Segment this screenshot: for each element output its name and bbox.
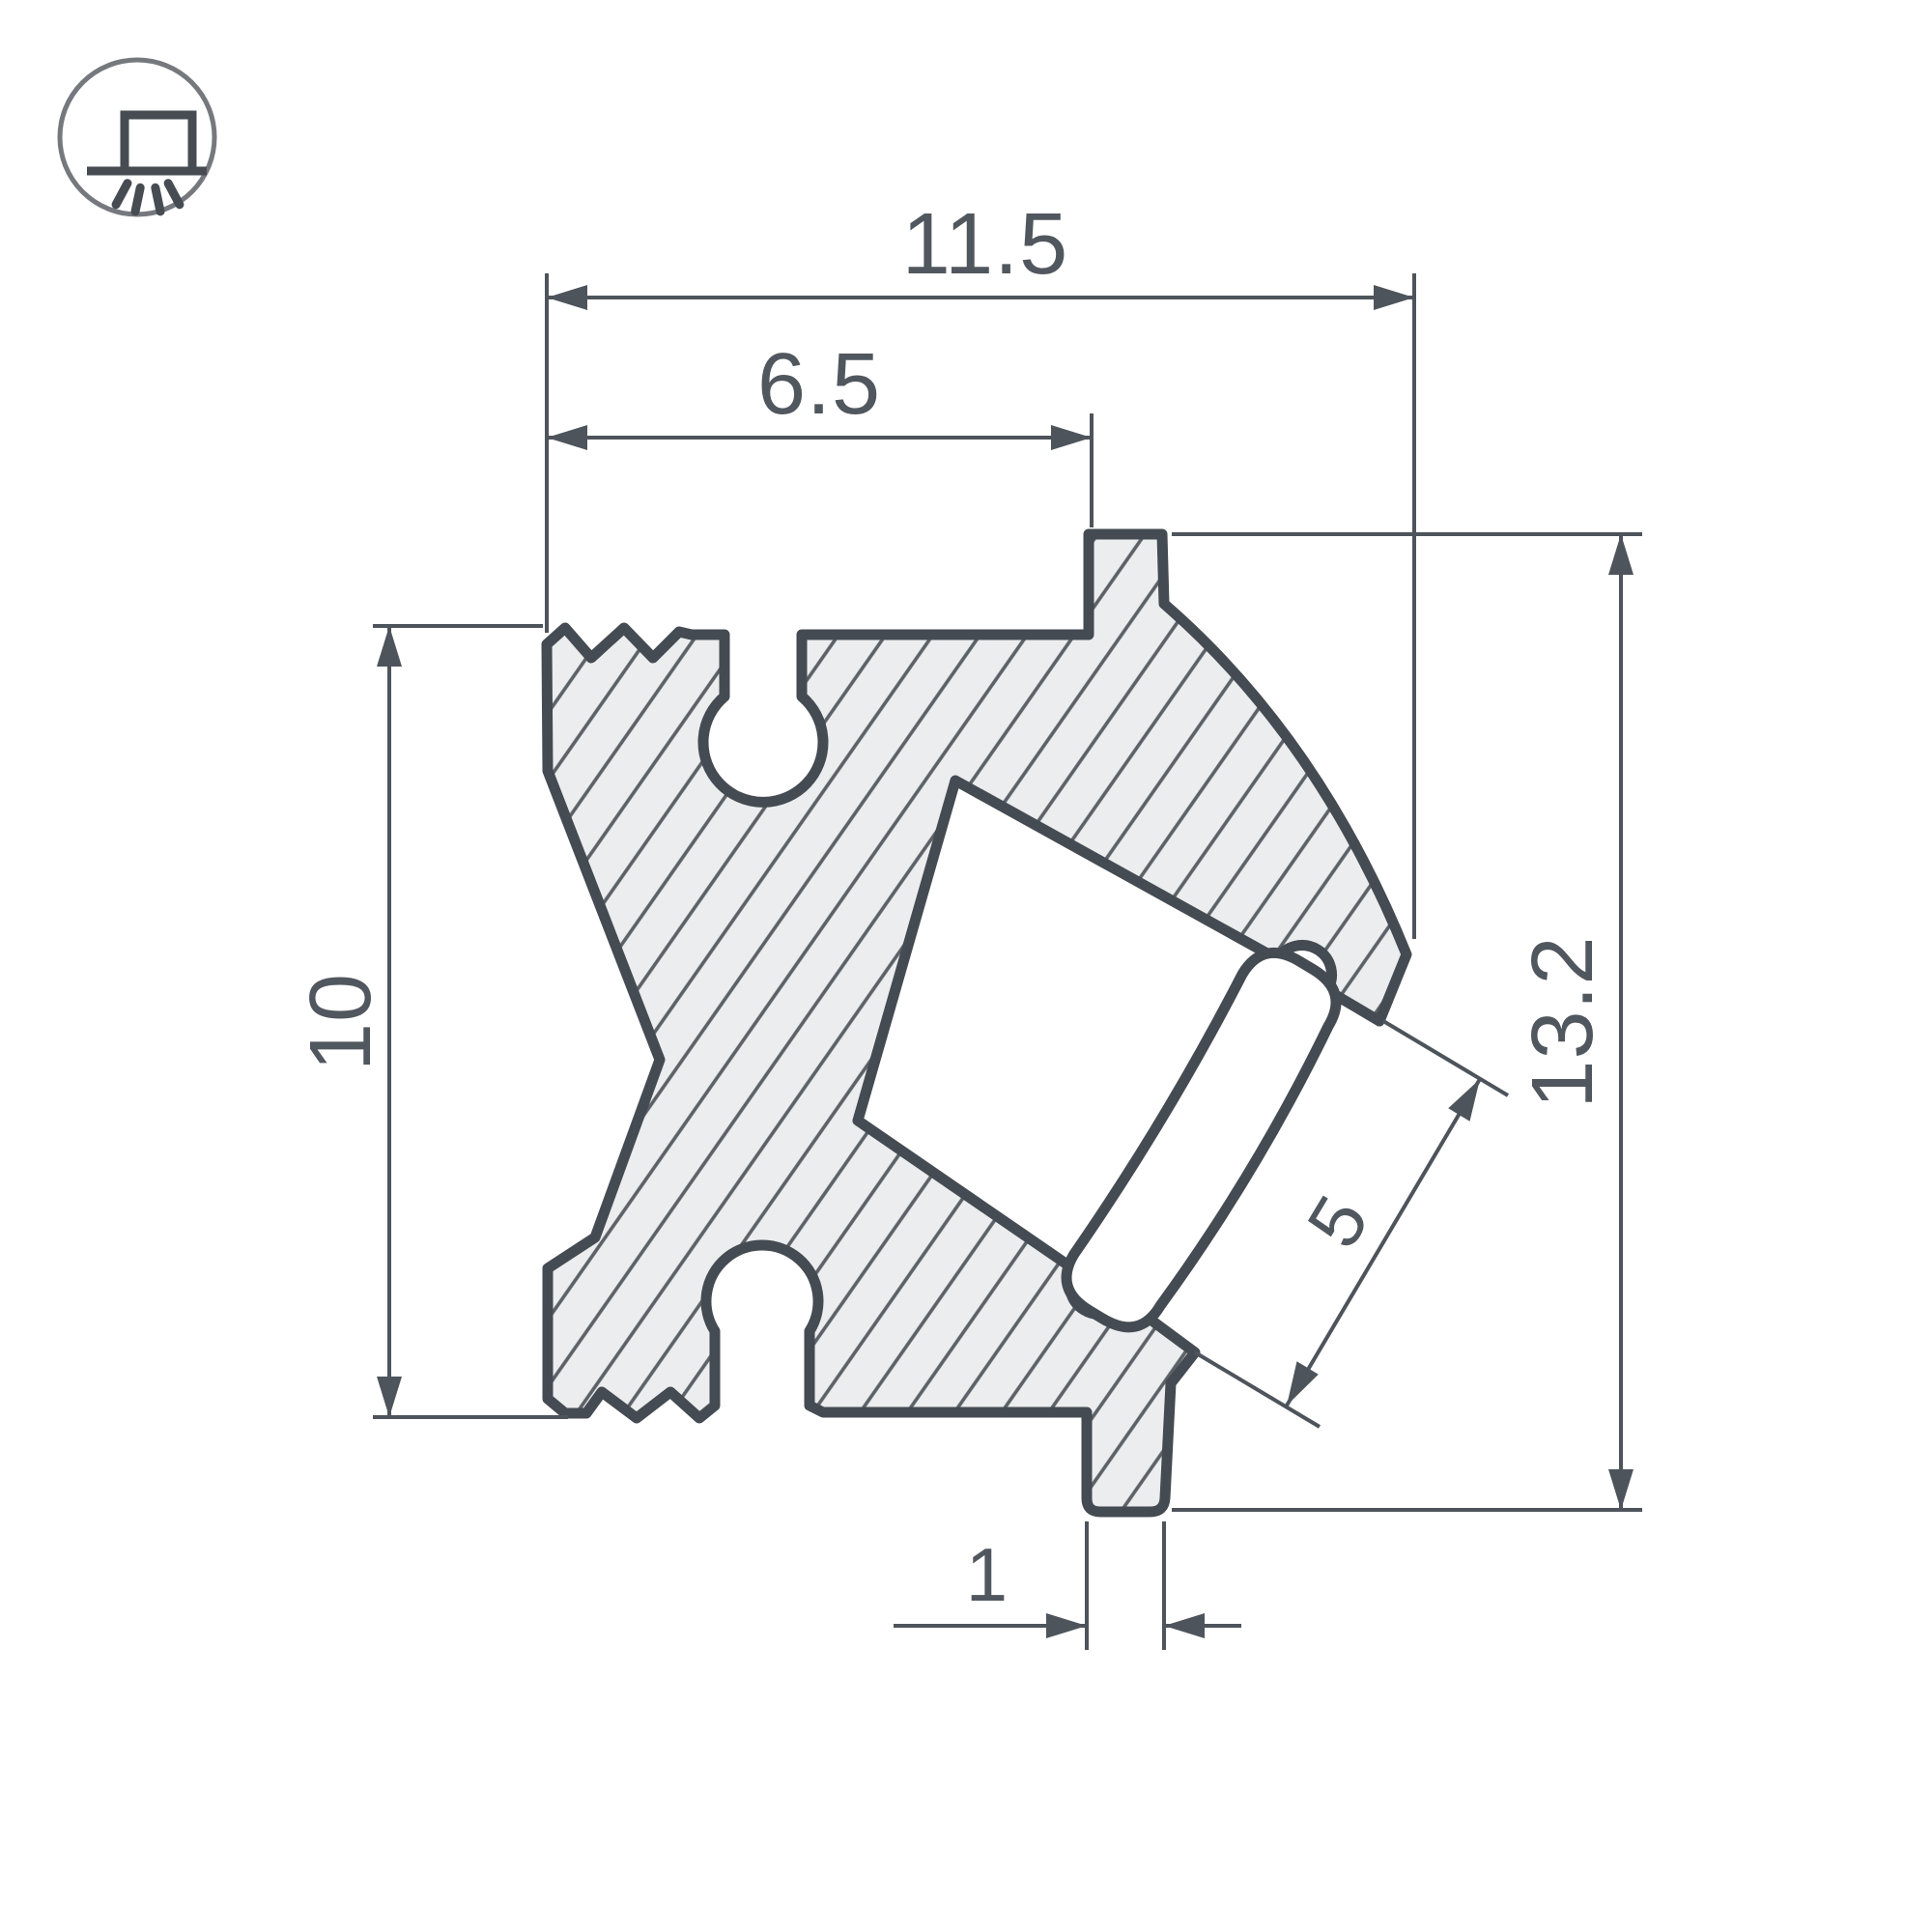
dimension-foot-width-label: 1 [966,1532,1009,1617]
dimension-overall-width-label: 11.5 [902,196,1069,293]
icon-fixture-box [125,115,192,171]
arrowhead-right [1164,1613,1205,1638]
profile-technical-drawing: 11.5 6.5 10 13.2 5 [0,0,1932,1932]
arrowhead-top [1608,534,1634,575]
arrowhead-left [547,285,587,310]
drawing-canvas: 11.5 6.5 10 13.2 5 [0,0,1932,1932]
dimension-line [1287,1079,1480,1406]
dimension-left-height-label: 10 [293,973,389,1071]
dimension-left-height: 10 [293,626,568,1417]
arrowhead-right [1374,285,1414,310]
arrowhead-top [377,626,402,667]
arrowhead-left [1046,1613,1087,1638]
arrowhead-left [547,425,587,450]
arrowhead-upper [1448,1079,1480,1122]
dimension-foot-width: 1 [894,1521,1241,1650]
dimension-inner-width: 6.5 [547,336,1092,527]
extension-line [1383,1021,1508,1095]
arrowhead-right [1051,425,1092,450]
dimension-channel-opening-label: 5 [1291,1180,1385,1261]
arrowhead-bottom [1608,1469,1634,1510]
arrowhead-bottom [377,1377,402,1417]
surface-mounted-light-icon [60,60,214,214]
dimension-overall-height-label: 13.2 [1515,935,1611,1108]
arrowhead-lower [1287,1361,1319,1406]
lens-cover [1053,939,1355,1344]
dimension-inner-width-label: 6.5 [757,336,881,433]
